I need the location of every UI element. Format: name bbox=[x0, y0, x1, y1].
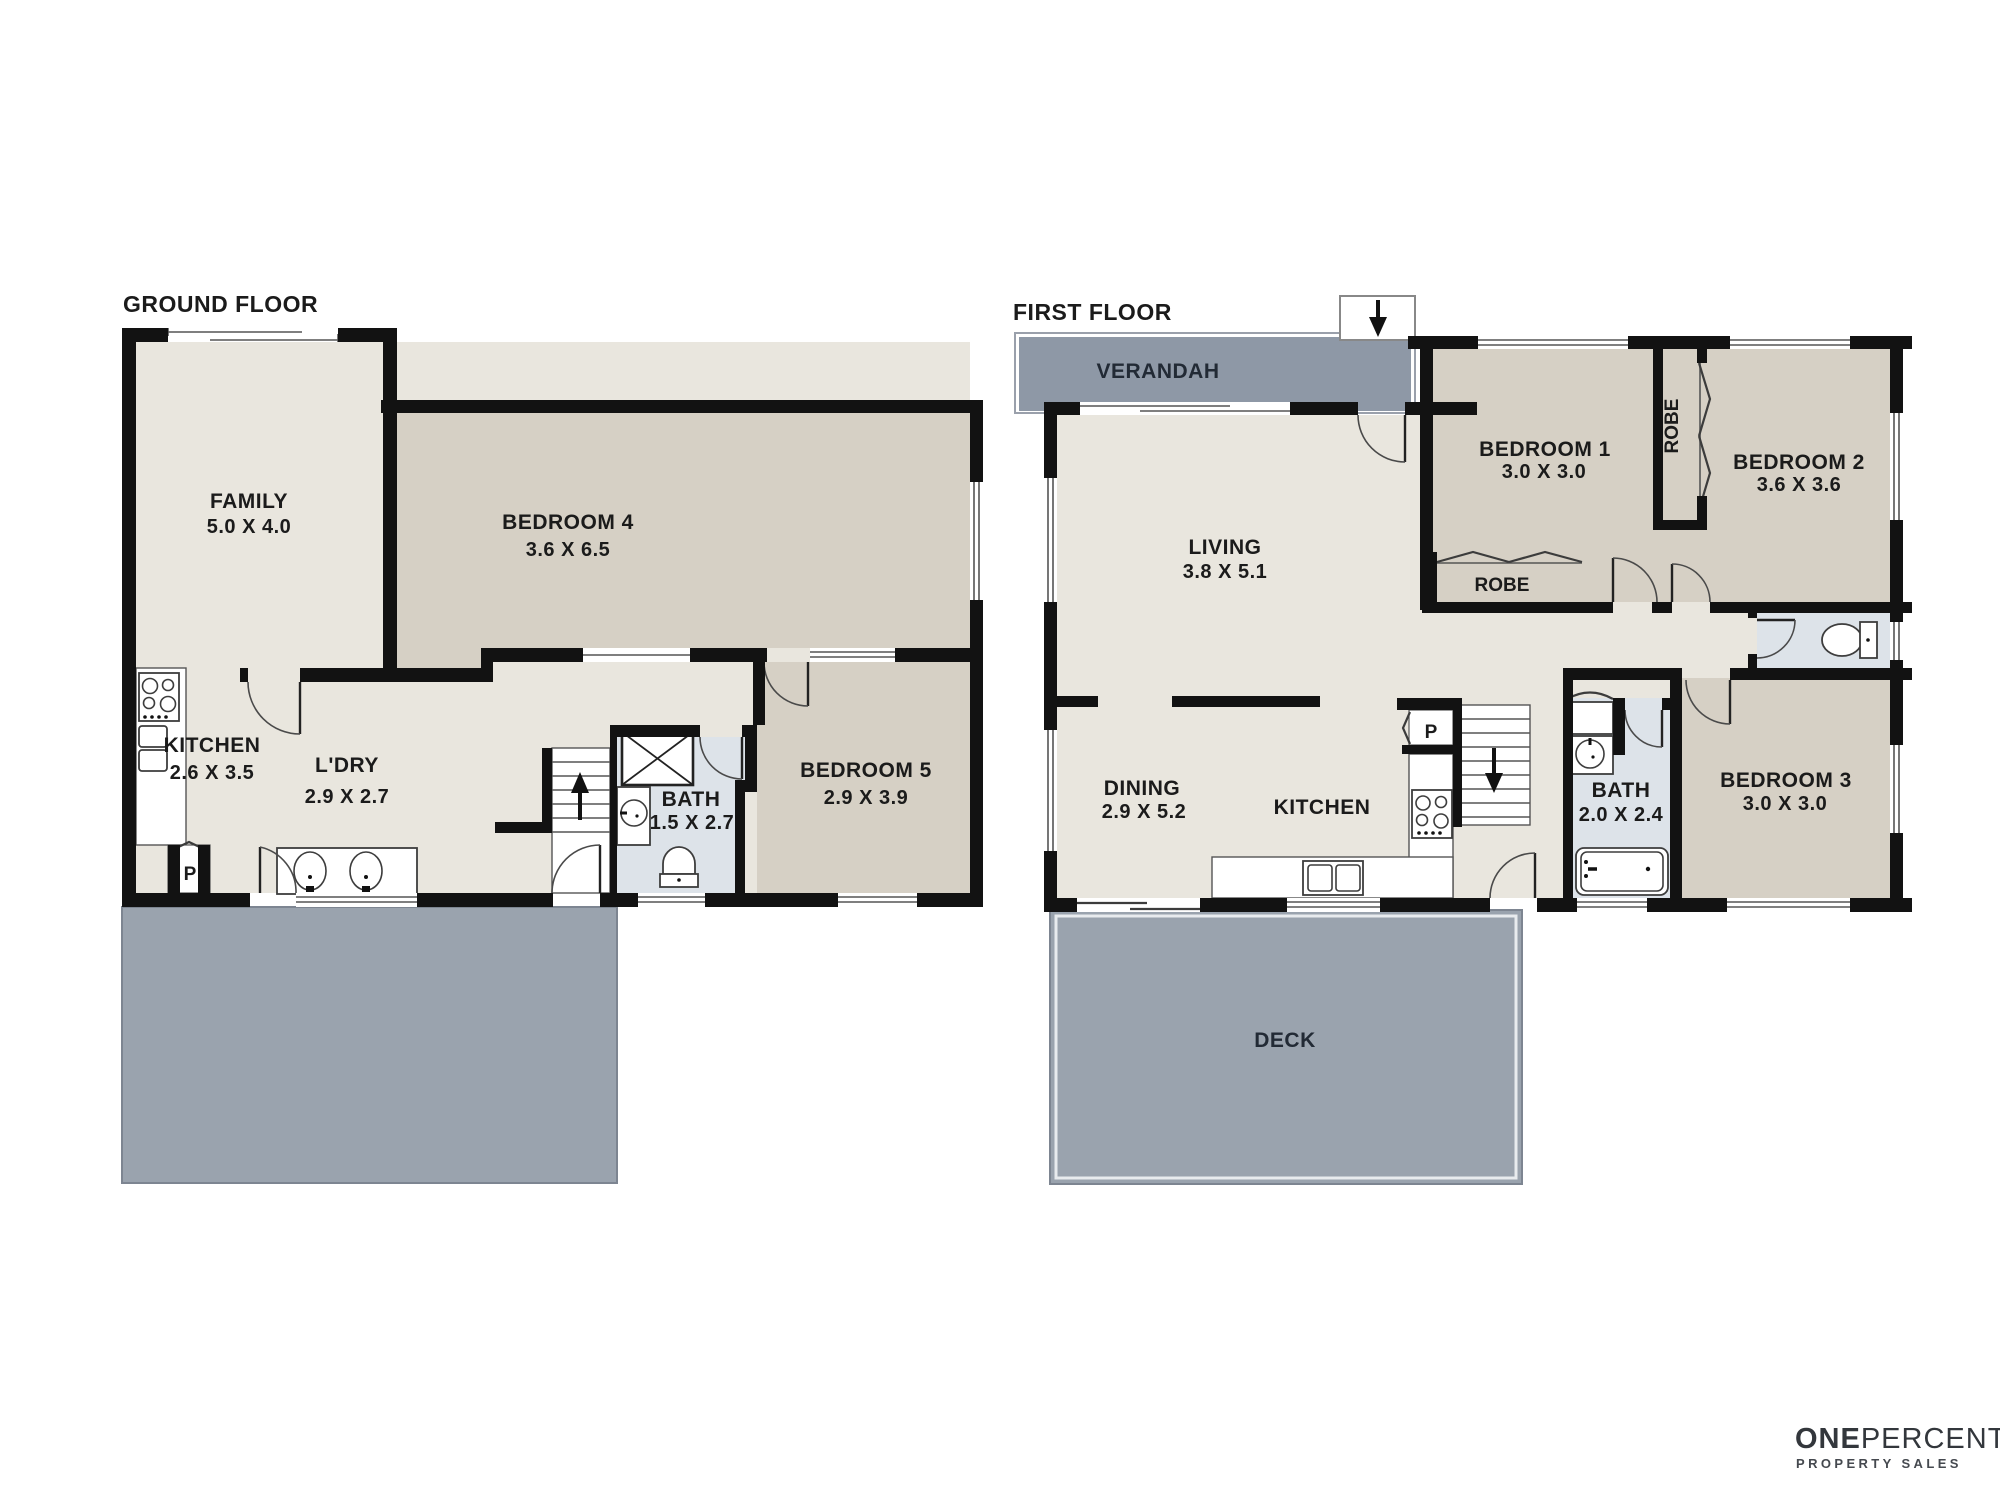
logo-percent: PERCENT bbox=[1861, 1423, 2000, 1455]
logo-wordmark: ONEPERCENT bbox=[1795, 1423, 2000, 1455]
logo-one: ONE bbox=[1795, 1423, 1861, 1455]
ground-floor-title: GROUND FLOOR bbox=[123, 291, 318, 317]
floorplan-drawing: GROUND FLOOR bbox=[0, 0, 2000, 1500]
family-label: FAMILY bbox=[210, 490, 288, 513]
bedroom2-dims: 3.6 X 3.6 bbox=[1757, 474, 1842, 496]
ground-floor-plan: GROUND FLOOR bbox=[122, 291, 983, 1183]
pantry-first-label: P bbox=[1425, 722, 1438, 743]
pantry-ground-label: P bbox=[184, 864, 197, 885]
robe-bed1-label: ROBE bbox=[1475, 575, 1530, 596]
robe-vertical-label: ROBE bbox=[1662, 399, 1683, 454]
first-floor-title: FIRST FLOOR bbox=[1013, 299, 1172, 325]
bath-sink-icon bbox=[617, 787, 650, 845]
living-dims: 3.8 X 5.1 bbox=[1183, 561, 1268, 583]
bedroom4-dims: 3.6 X 6.5 bbox=[526, 539, 611, 561]
laundry-dims: 2.9 X 2.7 bbox=[305, 786, 390, 808]
living-label: LIVING bbox=[1188, 536, 1261, 559]
shower-icon bbox=[622, 732, 693, 785]
kitchen-ground-label: KITCHEN bbox=[164, 734, 261, 757]
first-floor-plan: FIRST FLOOR bbox=[1013, 296, 1912, 1184]
double-sink-icon bbox=[1303, 861, 1363, 895]
laundry-tub-icon bbox=[277, 848, 417, 894]
dining-label: DINING bbox=[1104, 777, 1181, 800]
bathtub-icon bbox=[1576, 848, 1668, 895]
bedroom5-label: BEDROOM 5 bbox=[800, 759, 932, 782]
bath-ground-dims: 1.5 X 2.7 bbox=[650, 812, 735, 834]
logo-tagline: PROPERTY SALES bbox=[1796, 1456, 1962, 1471]
pantry-first: P bbox=[1403, 710, 1453, 745]
bedroom1-label: BEDROOM 1 bbox=[1479, 438, 1611, 461]
bedroom3-label: BEDROOM 3 bbox=[1720, 769, 1852, 792]
bath-first-dims: 2.0 X 2.4 bbox=[1579, 804, 1664, 826]
bath-ground-label: BATH bbox=[662, 788, 721, 811]
verandah-label: VERANDAH bbox=[1096, 360, 1219, 383]
ground-deck bbox=[122, 907, 617, 1183]
stairs-up bbox=[552, 748, 610, 893]
floorplan-page: GROUND FLOOR bbox=[0, 0, 2000, 1500]
room-bedroom4 bbox=[397, 413, 970, 668]
bedroom5-dims: 2.9 X 3.9 bbox=[824, 787, 909, 809]
stove-icon bbox=[1412, 790, 1452, 838]
dining-dims: 2.9 X 5.2 bbox=[1102, 801, 1187, 823]
bath-sink-icon bbox=[1567, 736, 1613, 774]
bedroom1-dims: 3.0 X 3.0 bbox=[1502, 461, 1587, 483]
bath-first-label: BATH bbox=[1592, 779, 1651, 802]
stove-icon bbox=[139, 673, 179, 721]
bedroom3-dims: 3.0 X 3.0 bbox=[1743, 793, 1828, 815]
toilet-icon bbox=[660, 847, 698, 887]
deck-label: DECK bbox=[1254, 1029, 1316, 1052]
kitchen-ground-dims: 2.6 X 3.5 bbox=[170, 762, 255, 784]
kitchen-first-label: KITCHEN bbox=[1274, 796, 1371, 819]
wc-toilet-icon bbox=[1822, 622, 1877, 658]
logo: ONEPERCENT PROPERTY SALES bbox=[1795, 1423, 2000, 1471]
family-dims: 5.0 X 4.0 bbox=[207, 516, 292, 538]
stairs-down bbox=[1460, 705, 1530, 825]
laundry-label: L'DRY bbox=[315, 754, 379, 777]
bedroom2-label: BEDROOM 2 bbox=[1733, 451, 1865, 474]
bedroom4-label: BEDROOM 4 bbox=[502, 511, 634, 534]
